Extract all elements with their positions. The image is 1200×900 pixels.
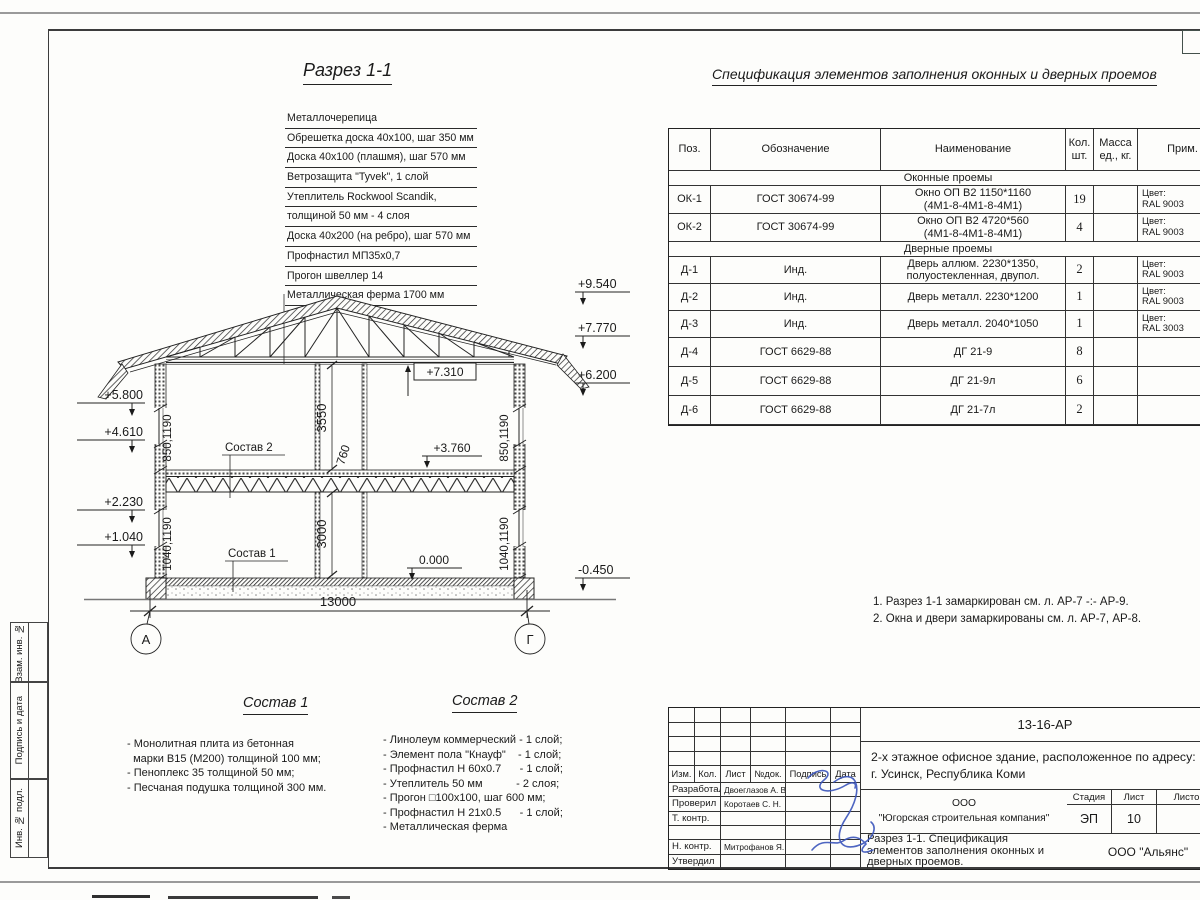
spec-cell-note: Цвет: RAL 9003 bbox=[1138, 186, 1200, 214]
side-label-vzam: Взам. инв. № bbox=[14, 623, 25, 683]
spec-header-qty: Кол. шт. bbox=[1066, 129, 1094, 171]
sostav1-heading: Состав 1 bbox=[243, 695, 308, 715]
side-label-podpis: Подпись и дата bbox=[14, 696, 25, 764]
sostav1-title-text: Состав 1 bbox=[243, 695, 308, 715]
spec-cell-name: Дверь аллюм. 2230*1350, полуостекленная,… bbox=[881, 257, 1066, 284]
elev-7310: +7.310 bbox=[426, 365, 463, 379]
spec-cell-note: Цвет: RAL 9003 bbox=[1138, 214, 1200, 242]
spec-cell-mass bbox=[1094, 284, 1138, 311]
spec-cell-qty: 2 bbox=[1066, 396, 1094, 425]
role-label: Н. контр. bbox=[669, 840, 721, 854]
stage-value-cell: ЭП bbox=[1067, 805, 1112, 834]
interior-column bbox=[362, 492, 367, 578]
dim-3550: 3550 bbox=[314, 404, 329, 433]
elevation-marks-left: +5.800 +4.610 +2.230 +1.040 bbox=[77, 388, 145, 558]
dim-wall-upper-right: 850,1190 bbox=[499, 414, 511, 461]
dim-wall-lower-left: 1040,1190 bbox=[162, 517, 174, 571]
spec-cell-name: ДГ 21-9л bbox=[881, 367, 1066, 396]
spec-title-text: Спецификация элементов заполнения оконны… bbox=[712, 66, 1157, 86]
foundation-block bbox=[514, 578, 534, 599]
spec-cell-doc: ГОСТ 30674-99 bbox=[711, 186, 881, 214]
spec-header-doc: Обозначение bbox=[711, 129, 881, 171]
spec-cell-qty: 4 bbox=[1066, 214, 1094, 242]
spec-cell-qty: 6 bbox=[1066, 367, 1094, 396]
sheet-value: 10 bbox=[1127, 812, 1141, 826]
spec-cell-qty: 8 bbox=[1066, 338, 1094, 367]
spec-cell-doc: ГОСТ 6629-88 bbox=[711, 396, 881, 425]
scan-bottom-dash bbox=[168, 896, 318, 899]
spec-cell-mass bbox=[1094, 257, 1138, 284]
floor2-slab bbox=[166, 470, 514, 477]
sostav1-ref: Состав 1 bbox=[228, 548, 276, 560]
spec-cell-qty: 19 bbox=[1066, 186, 1094, 214]
elev-3760: +3.760 bbox=[433, 441, 470, 455]
interior-column bbox=[362, 364, 367, 470]
scan-bottom-dash bbox=[332, 896, 350, 899]
elev-5800: +5.800 bbox=[104, 388, 143, 402]
roof-layer: Доска 40х200 (на ребро), шаг 570 мм bbox=[285, 227, 477, 247]
spec-cell-mass bbox=[1094, 338, 1138, 367]
spec-cell-mass bbox=[1094, 367, 1138, 396]
spec-section-windows: Оконные проемы bbox=[669, 171, 1200, 186]
drawing-sheet: Взам. инв. № Подпись и дата Инв. № подл.… bbox=[0, 0, 1200, 900]
scan-bottom-dash bbox=[92, 895, 150, 898]
title-block: Изм. Кол. Лист №док. Подпись Дата Разраб… bbox=[668, 707, 1200, 870]
spec-section-doors: Дверные проемы bbox=[669, 242, 1200, 257]
side-box-podpis: Подпись и дата bbox=[10, 681, 48, 780]
role-label: Проверил bbox=[669, 797, 721, 811]
project-cell: 2-х этажное офисное здание, расположенно… bbox=[861, 742, 1200, 790]
signature-flourish bbox=[834, 777, 874, 847]
note-1: 1. Разрез 1-1 замаркирован см. л. АР-7 -… bbox=[873, 594, 1141, 611]
spec-cell-name: ДГ 21-7л bbox=[881, 396, 1066, 425]
section-title-text: Разрез 1-1 bbox=[303, 60, 392, 85]
dim-3000: 3000 bbox=[314, 520, 329, 549]
role-label: Т. контр. bbox=[669, 812, 721, 826]
role-label: Утвердил bbox=[669, 855, 721, 869]
elev-2230: +2.230 bbox=[104, 495, 143, 509]
sostav2-title-text: Состав 2 bbox=[452, 693, 517, 713]
dim-760: 760 bbox=[333, 443, 353, 467]
dim-wall-upper-left: 850,1190 bbox=[162, 414, 174, 461]
stage-label-cell: Стадия bbox=[1067, 790, 1112, 805]
floor2-truss bbox=[166, 477, 514, 493]
spec-header-note: Прим. bbox=[1138, 129, 1200, 171]
sheet-label-cell: Лист bbox=[1112, 790, 1157, 805]
side-box-inv: Инв. № подл. bbox=[10, 778, 48, 858]
wall-dim-ticks bbox=[154, 404, 526, 582]
spec-cell-note: Цвет: RAL 9003 bbox=[1138, 257, 1200, 284]
spec-cell-qty: 2 bbox=[1066, 257, 1094, 284]
ground-slab bbox=[166, 578, 514, 586]
spec-cell-pos: Д-3 bbox=[669, 311, 711, 338]
spec-cell-doc: ГОСТ 30674-99 bbox=[711, 214, 881, 242]
side-box-label-cell: Взам. инв. № bbox=[11, 623, 29, 682]
stage-label: Стадия bbox=[1073, 792, 1105, 803]
spec-cell-name: Дверь металл. 2040*1050 bbox=[881, 311, 1066, 338]
sostav2-list: - Линолеум коммерческий - 1 слой; - Элем… bbox=[383, 733, 563, 835]
sheets-value-cell bbox=[1157, 805, 1200, 834]
roof-layer: Обрешетка доска 40х100, шаг 350 мм bbox=[285, 129, 477, 149]
spec-cell-note bbox=[1138, 367, 1200, 396]
elev-7770: +7.770 bbox=[578, 321, 617, 335]
contractor-name: ООО "Альянс" bbox=[1108, 845, 1188, 859]
spec-cell-doc: Инд. bbox=[711, 257, 881, 284]
roof-layer: Профнастил МП35х0,7 bbox=[285, 247, 477, 267]
spec-cell-doc: Инд. bbox=[711, 311, 881, 338]
spec-cell-doc: ГОСТ 6629-88 bbox=[711, 338, 881, 367]
elev-9540: +9.540 bbox=[578, 277, 617, 291]
spec-cell-pos: Д-1 bbox=[669, 257, 711, 284]
sheet-label: Лист bbox=[1124, 792, 1145, 803]
spec-cell-qty: 1 bbox=[1066, 284, 1094, 311]
sostav2-heading: Состав 2 bbox=[452, 693, 517, 713]
roof-layer: толщиной 50 мм - 4 слоя bbox=[285, 207, 477, 227]
scan-bottom-line bbox=[0, 881, 1200, 883]
spec-table: Поз. Обозначение Наименование Кол. шт. М… bbox=[668, 128, 1200, 426]
note-2: 2. Окна и двери замаркированы см. л. АР-… bbox=[873, 611, 1141, 628]
spec-cell-note: Цвет: RAL 3003 bbox=[1138, 311, 1200, 338]
composition-refs: Состав 2 Состав 1 bbox=[222, 442, 288, 592]
spec-cell-note bbox=[1138, 396, 1200, 425]
signature-proveril bbox=[808, 771, 856, 791]
sostav1-list: - Монолитная плита из бетонная марки В15… bbox=[127, 737, 326, 795]
role-label bbox=[669, 826, 721, 840]
spec-header-name: Наименование bbox=[881, 129, 1066, 171]
project-name: 2-х этажное офисное здание, расположенно… bbox=[871, 749, 1196, 782]
spec-cell-qty: 1 bbox=[1066, 311, 1094, 338]
signatures-overlay bbox=[770, 762, 910, 872]
doc-number-cell: 13-16-АР bbox=[861, 708, 1200, 742]
roof-band bbox=[118, 296, 567, 369]
spec-cell-note bbox=[1138, 338, 1200, 367]
sheet-value-cell: 10 bbox=[1112, 805, 1157, 834]
sostav2-ref: Состав 2 bbox=[225, 442, 273, 454]
col-list: Лист bbox=[721, 766, 751, 783]
elev-6200: +6.200 bbox=[578, 368, 617, 382]
foundation-block bbox=[146, 578, 166, 599]
spec-header-pos: Поз. bbox=[669, 129, 711, 171]
sheets-label: Листов bbox=[1174, 792, 1200, 803]
spec-cell-pos: ОК-1 bbox=[669, 186, 711, 214]
frame-top-line bbox=[48, 29, 1200, 31]
elevation-marks-right: +9.540 +7.770 +6.200 -0.450 bbox=[575, 277, 630, 591]
elev-m0450: -0.450 bbox=[578, 563, 613, 577]
spec-cell-pos: Д-5 bbox=[669, 367, 711, 396]
spec-cell-name: Окно ОП В2 1150*1160 (4М1-8-4М1-8-4М1) bbox=[881, 186, 1066, 214]
elev-0000: 0.000 bbox=[419, 553, 449, 567]
spec-cell-name: Окно ОП В2 4720*560 (4М1-8-4М1-8-4М1) bbox=[881, 214, 1066, 242]
spec-cell-name: Дверь металл. 2230*1200 bbox=[881, 284, 1066, 311]
contractor-cell: ООО "Альянс" bbox=[1067, 834, 1200, 869]
spec-title: Спецификация элементов заполнения оконны… bbox=[712, 66, 1157, 86]
spec-cell-mass bbox=[1094, 186, 1138, 214]
spec-cell-doc: ГОСТ 6629-88 bbox=[711, 367, 881, 396]
col-kol: Кол. bbox=[695, 766, 721, 783]
side-box-label-cell: Инв. № подл. bbox=[11, 779, 29, 857]
spec-cell-mass bbox=[1094, 311, 1138, 338]
side-label-inv: Инв. № подл. bbox=[14, 788, 25, 848]
spec-cell-mass bbox=[1094, 214, 1138, 242]
spec-cell-note: Цвет: RAL 9003 bbox=[1138, 284, 1200, 311]
col-izm: Изм. bbox=[669, 766, 695, 783]
stage-value: ЭП bbox=[1080, 812, 1098, 826]
spec-cell-name: ДГ 21-9 bbox=[881, 338, 1066, 367]
change-log-grid bbox=[669, 708, 861, 766]
scan-top-line bbox=[0, 12, 1200, 14]
corner-stamp-box bbox=[1182, 30, 1200, 54]
spec-header-mass: Масса ед., кг. bbox=[1094, 129, 1138, 171]
spec-cell-pos: Д-2 bbox=[669, 284, 711, 311]
doc-number: 13-16-АР bbox=[1018, 717, 1073, 732]
roof-layer: Ветрозащита "Tyvek", 1 слой bbox=[285, 168, 477, 188]
spec-cell-pos: Д-4 bbox=[669, 338, 711, 367]
frame-left-line bbox=[48, 29, 49, 868]
roof-layer: Утеплитель Rockwool Scandik, bbox=[285, 188, 477, 208]
elev-1040: +1.040 bbox=[104, 530, 143, 544]
dim-wall-lower-right: 1040,1190 bbox=[499, 517, 511, 571]
side-box-vzam: Взам. инв. № bbox=[10, 622, 48, 683]
spec-cell-doc: Инд. bbox=[711, 284, 881, 311]
sheets-label-cell: Листов bbox=[1157, 790, 1200, 805]
section-title: Разрез 1-1 bbox=[303, 60, 392, 85]
roof-layer: Доска 40х100 (плашмя), шаг 570 мм bbox=[285, 148, 477, 168]
roof-layer: Металлочерепица bbox=[285, 109, 477, 129]
elev-4610: +4.610 bbox=[104, 425, 143, 439]
building-section-drawing: +5.800 +4.610 +2.230 +1.040 +9.540 +7.77… bbox=[70, 268, 630, 678]
axis-letter-left: А bbox=[142, 632, 151, 647]
notes-block: 1. Разрез 1-1 замаркирован см. л. АР-7 -… bbox=[873, 594, 1141, 629]
side-box-label-cell: Подпись и дата bbox=[11, 682, 29, 779]
spec-cell-pos: ОК-2 bbox=[669, 214, 711, 242]
spec-cell-mass bbox=[1094, 396, 1138, 425]
axis-letter-right: Г bbox=[526, 632, 533, 647]
dim-13000: 13000 bbox=[320, 594, 356, 609]
role-label: Разработал bbox=[669, 783, 721, 797]
spec-cell-pos: Д-6 bbox=[669, 396, 711, 425]
